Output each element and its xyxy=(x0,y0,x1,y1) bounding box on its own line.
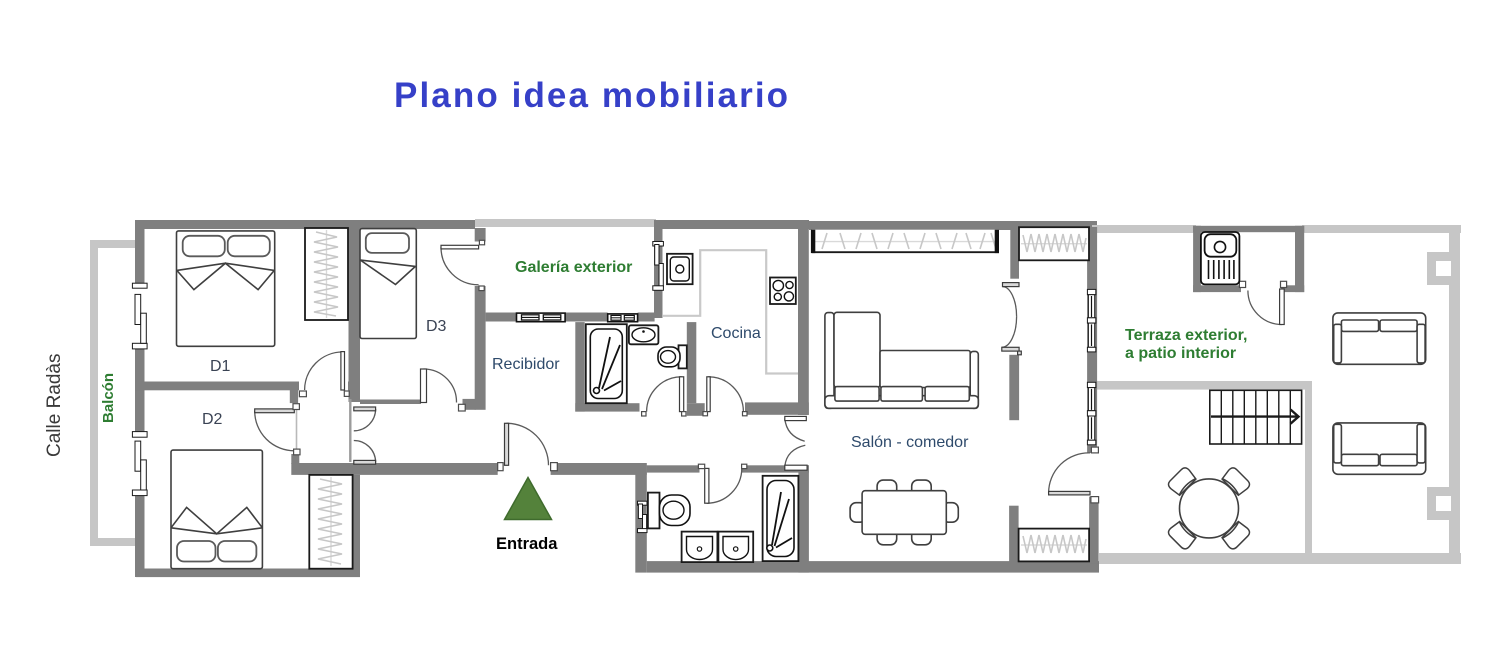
svg-text:Calle Radàs: Calle Radàs xyxy=(44,354,65,458)
svg-text:D3: D3 xyxy=(426,318,447,335)
svg-text:Cocina: Cocina xyxy=(711,325,761,342)
svg-text:Recibidor: Recibidor xyxy=(492,356,560,373)
svg-text:Salón - comedor: Salón - comedor xyxy=(851,434,969,451)
svg-text:D1: D1 xyxy=(210,358,231,375)
svg-text:Galería exterior: Galería exterior xyxy=(515,259,632,276)
svg-text:Entrada: Entrada xyxy=(496,535,558,553)
svg-text:D2: D2 xyxy=(202,411,223,428)
svg-text:a patio interior: a patio interior xyxy=(1125,345,1236,362)
svg-text:Balcón: Balcón xyxy=(100,373,117,423)
svg-text:Plano idea mobiliario: Plano idea mobiliario xyxy=(394,76,790,115)
svg-text:Terraza exterior,: Terraza exterior, xyxy=(1125,327,1247,344)
